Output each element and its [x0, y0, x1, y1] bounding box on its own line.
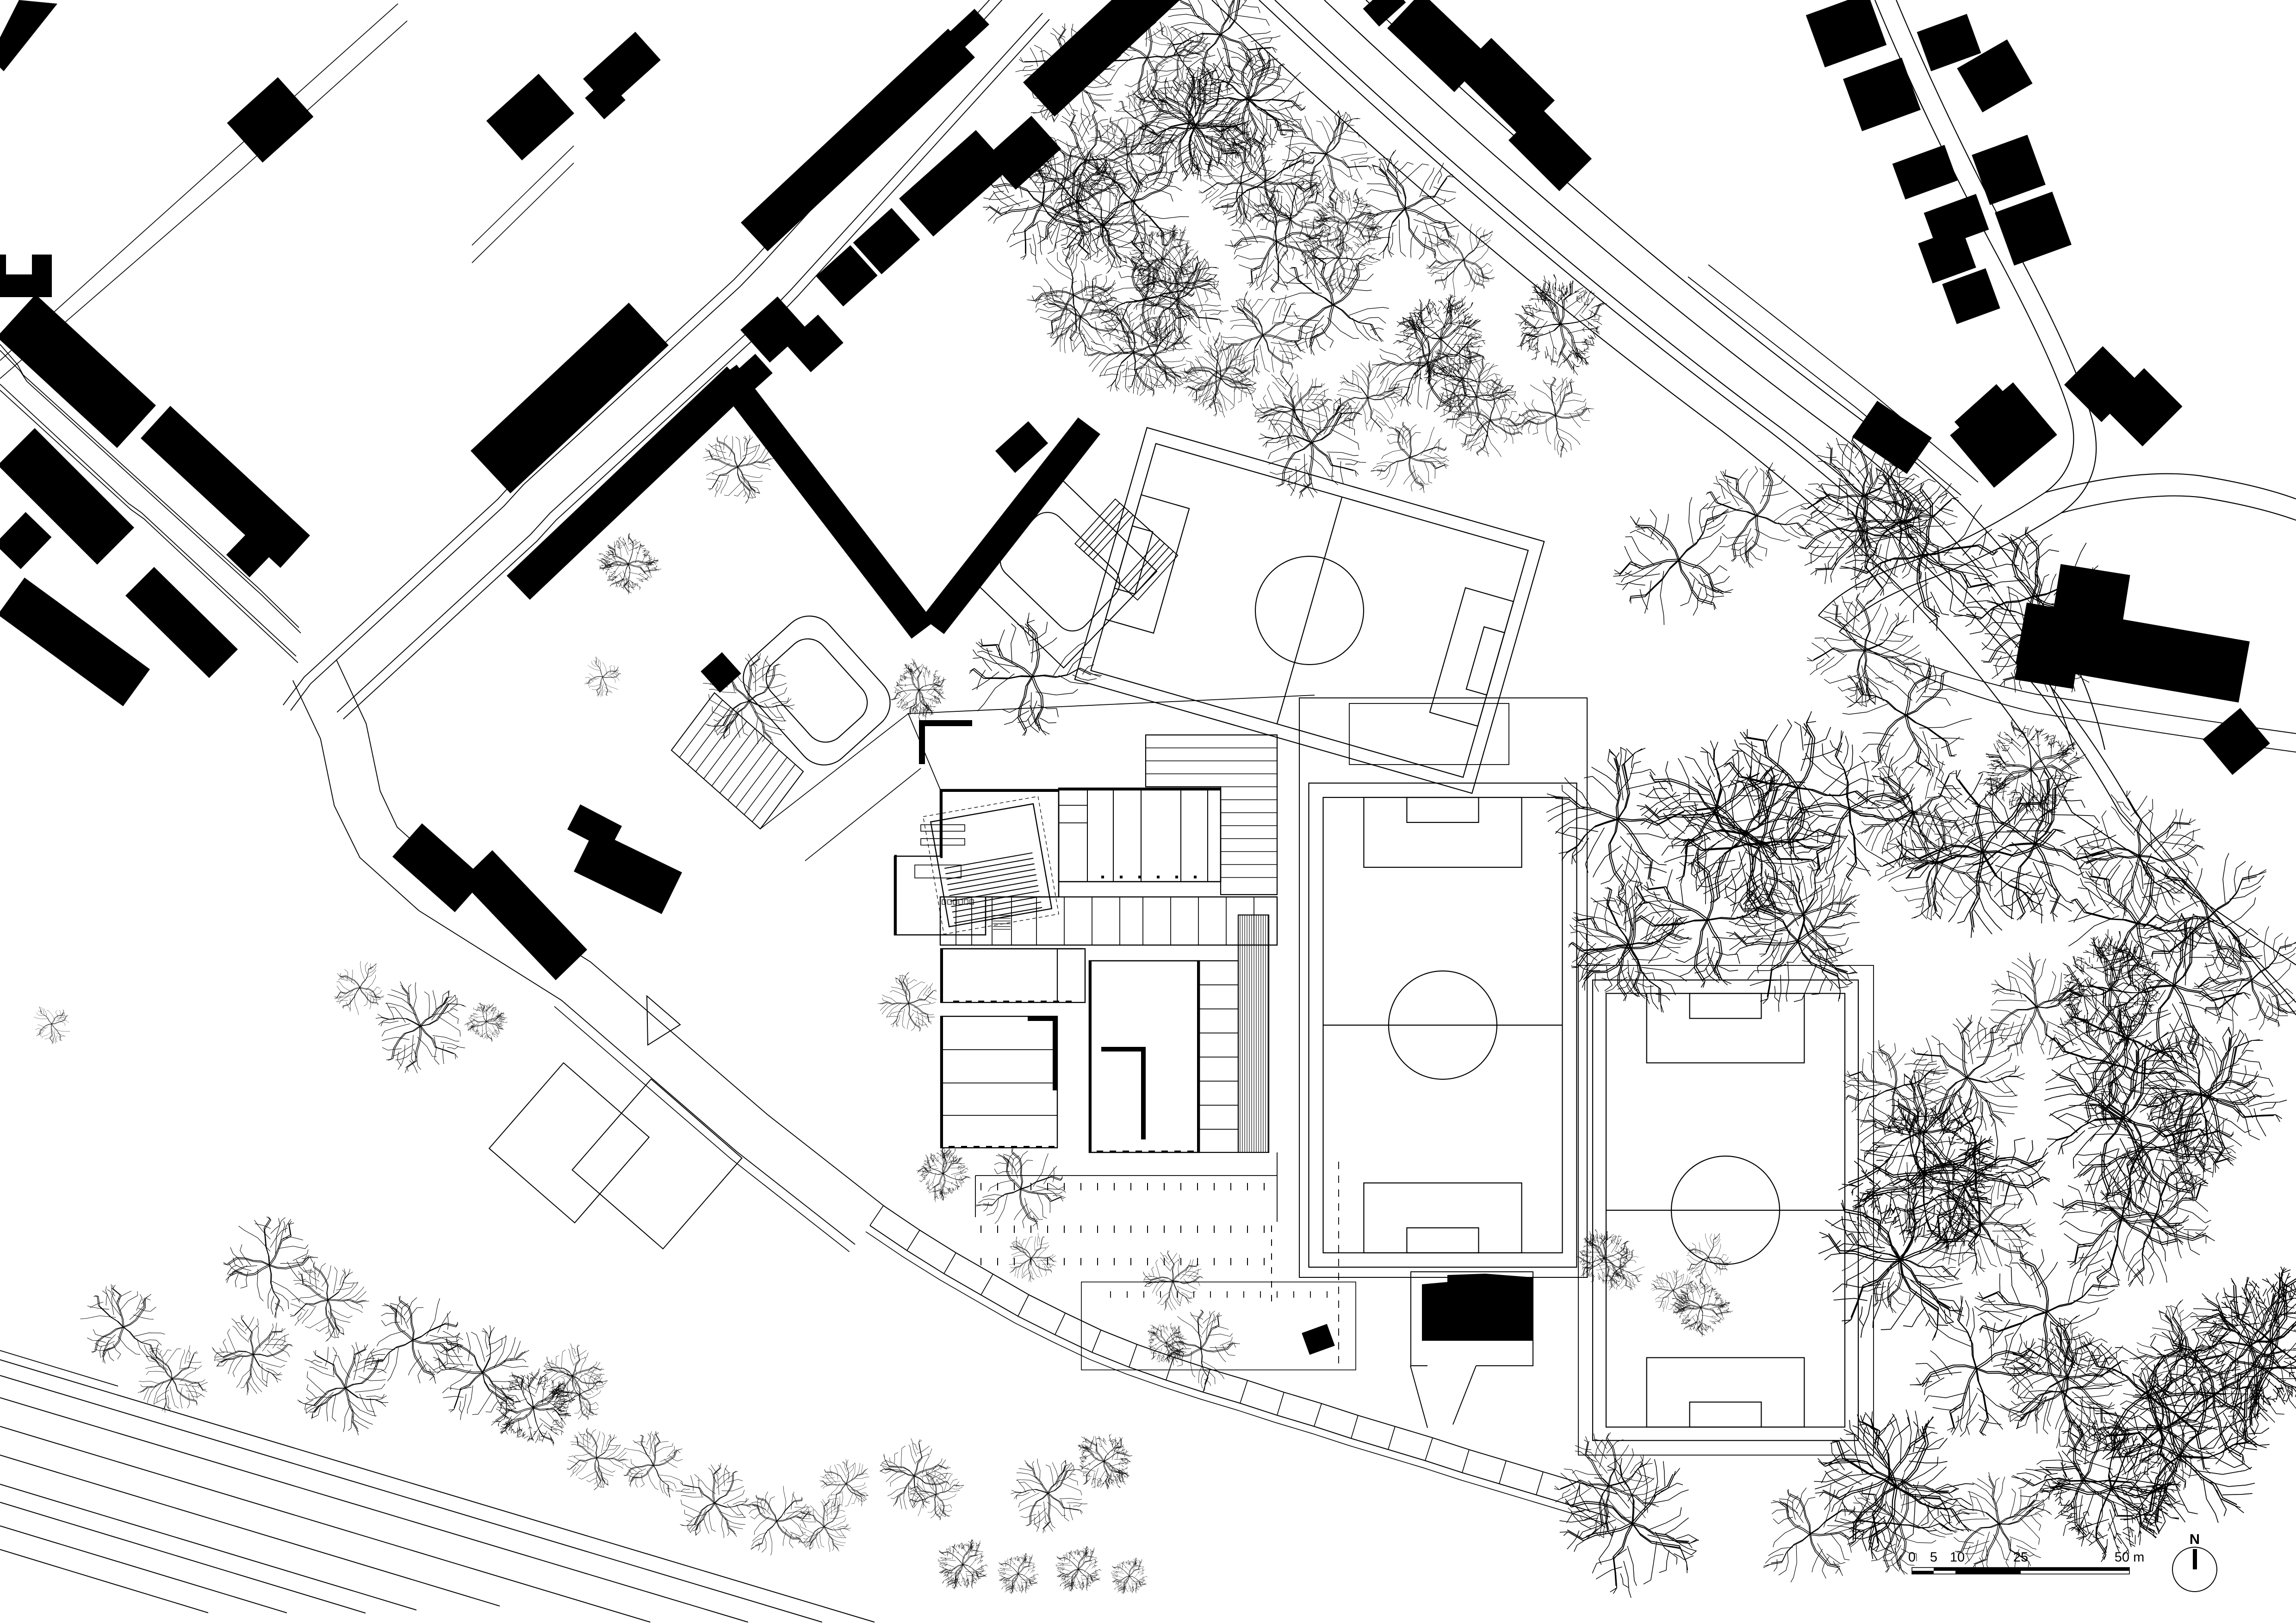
svg-text:50 m: 50 m [2115, 1550, 2144, 1565]
svg-text:25: 25 [2013, 1550, 2028, 1565]
svg-text:N: N [2190, 1531, 2200, 1547]
svg-text:0: 0 [1908, 1550, 1916, 1565]
svg-text:5: 5 [1930, 1550, 1937, 1565]
svg-text:10: 10 [1950, 1550, 1965, 1565]
